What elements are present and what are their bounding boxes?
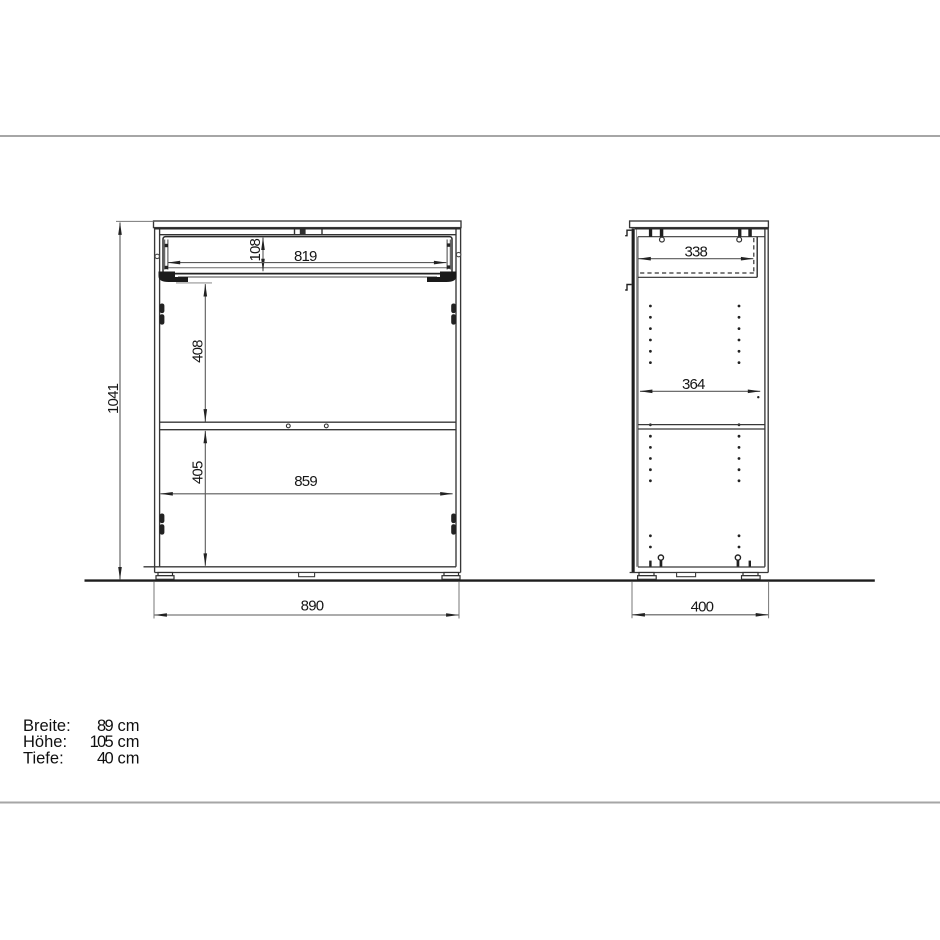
svg-text:338: 338 [684,244,707,261]
svg-text:Höhe:: Höhe: [23,733,67,751]
svg-text:890: 890 [301,598,324,615]
svg-text:859: 859 [294,473,317,490]
svg-text:Tiefe:: Tiefe: [23,750,64,768]
svg-text:cm: cm [118,750,140,768]
svg-text:cm: cm [118,733,140,751]
svg-text:108: 108 [247,238,264,261]
svg-text:405: 405 [190,461,207,484]
svg-text:408: 408 [190,340,207,363]
svg-text:40: 40 [97,750,113,768]
svg-text:819: 819 [294,248,317,265]
svg-text:364: 364 [682,376,705,393]
svg-text:105: 105 [90,733,114,751]
svg-text:1041: 1041 [105,383,122,414]
svg-text:400: 400 [691,599,714,616]
